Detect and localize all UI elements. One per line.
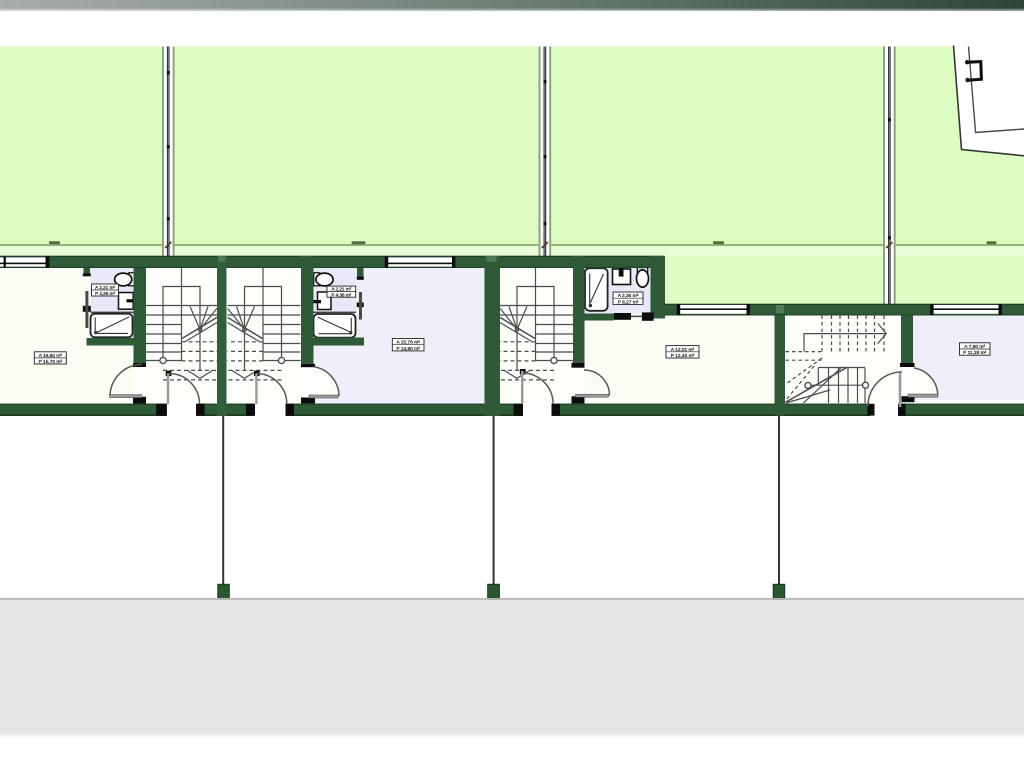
svg-text:P 4,36 m²: P 4,36 m²	[331, 292, 351, 297]
svg-text:A 2,35 m²: A 2,35 m²	[618, 293, 639, 299]
svg-text:A 2,21 m²: A 2,21 m²	[95, 285, 115, 290]
svg-text:P 11,28 m²: P 11,28 m²	[963, 350, 986, 356]
svg-text:P 6,27 m²: P 6,27 m²	[618, 299, 639, 305]
svg-text:P 14,90 m²: P 14,90 m²	[396, 346, 420, 352]
svg-text:A 12,01 m²: A 12,01 m²	[671, 347, 695, 353]
svg-text:A 7,80 m²: A 7,80 m²	[964, 344, 985, 350]
svg-text:A 16,60 m²: A 16,60 m²	[39, 353, 63, 359]
svg-text:P 12,45 m²: P 12,45 m²	[671, 353, 695, 359]
svg-text:A 15,76 m²: A 15,76 m²	[396, 340, 420, 346]
svg-text:A 2,21 m²: A 2,21 m²	[331, 287, 351, 292]
svg-text:P 15,70 m²: P 15,70 m²	[39, 359, 63, 365]
svg-text:P 4,36 m²: P 4,36 m²	[95, 291, 115, 296]
